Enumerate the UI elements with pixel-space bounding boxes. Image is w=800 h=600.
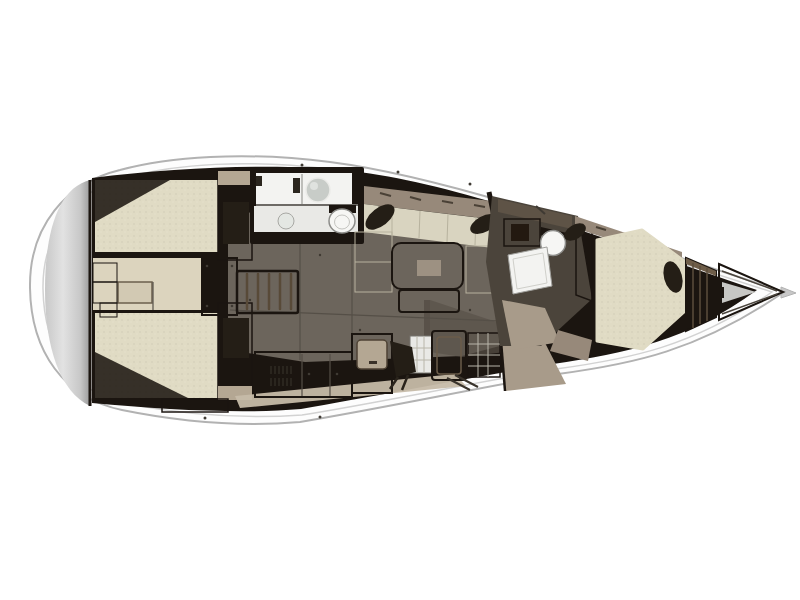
aft-corridor: Aft corridor under cockpit [93,258,202,317]
shower-floor [256,173,352,204]
cabinet-dark-door [223,318,249,358]
fridge-lid [357,340,387,369]
aft-head: Aft head with sink and toilet [250,167,364,244]
drain-basin [278,213,294,229]
table-center-leaf [417,260,441,276]
floorplan-svg: Sailing yacht interior layout — top-view… [0,0,800,600]
deck-fitting [204,417,207,420]
locker-hatch [717,287,724,298]
door-handle [308,373,311,376]
screw [231,305,234,308]
cabinet-dark-door [223,202,249,244]
yacht-floorplan-image: Sailing yacht interior layout — top-view… [0,0,800,600]
shower-fitting-icon [256,176,262,186]
sink-highlight [310,182,318,190]
screw [206,305,209,308]
door-handle [336,373,339,376]
floor-fitting [359,329,361,331]
floor-fitting [319,254,321,256]
floor-fitting [249,299,251,301]
aft-cabin-starboard: Aft cabin (bottom) — double berth [95,303,252,412]
deck-fitting [301,164,304,167]
screw [206,265,209,268]
deck-fitting [319,416,322,419]
fridge-handle [369,361,377,364]
deck-fitting [469,183,472,186]
floor-fitting [469,309,471,311]
deck-fitting [397,171,400,174]
sink-bowl [306,178,330,202]
cabinet-top-shelf [218,171,252,185]
faucet-icon [293,178,300,193]
vanity-basin [511,224,529,241]
bilge-hatch [118,282,152,303]
screw [231,265,234,268]
